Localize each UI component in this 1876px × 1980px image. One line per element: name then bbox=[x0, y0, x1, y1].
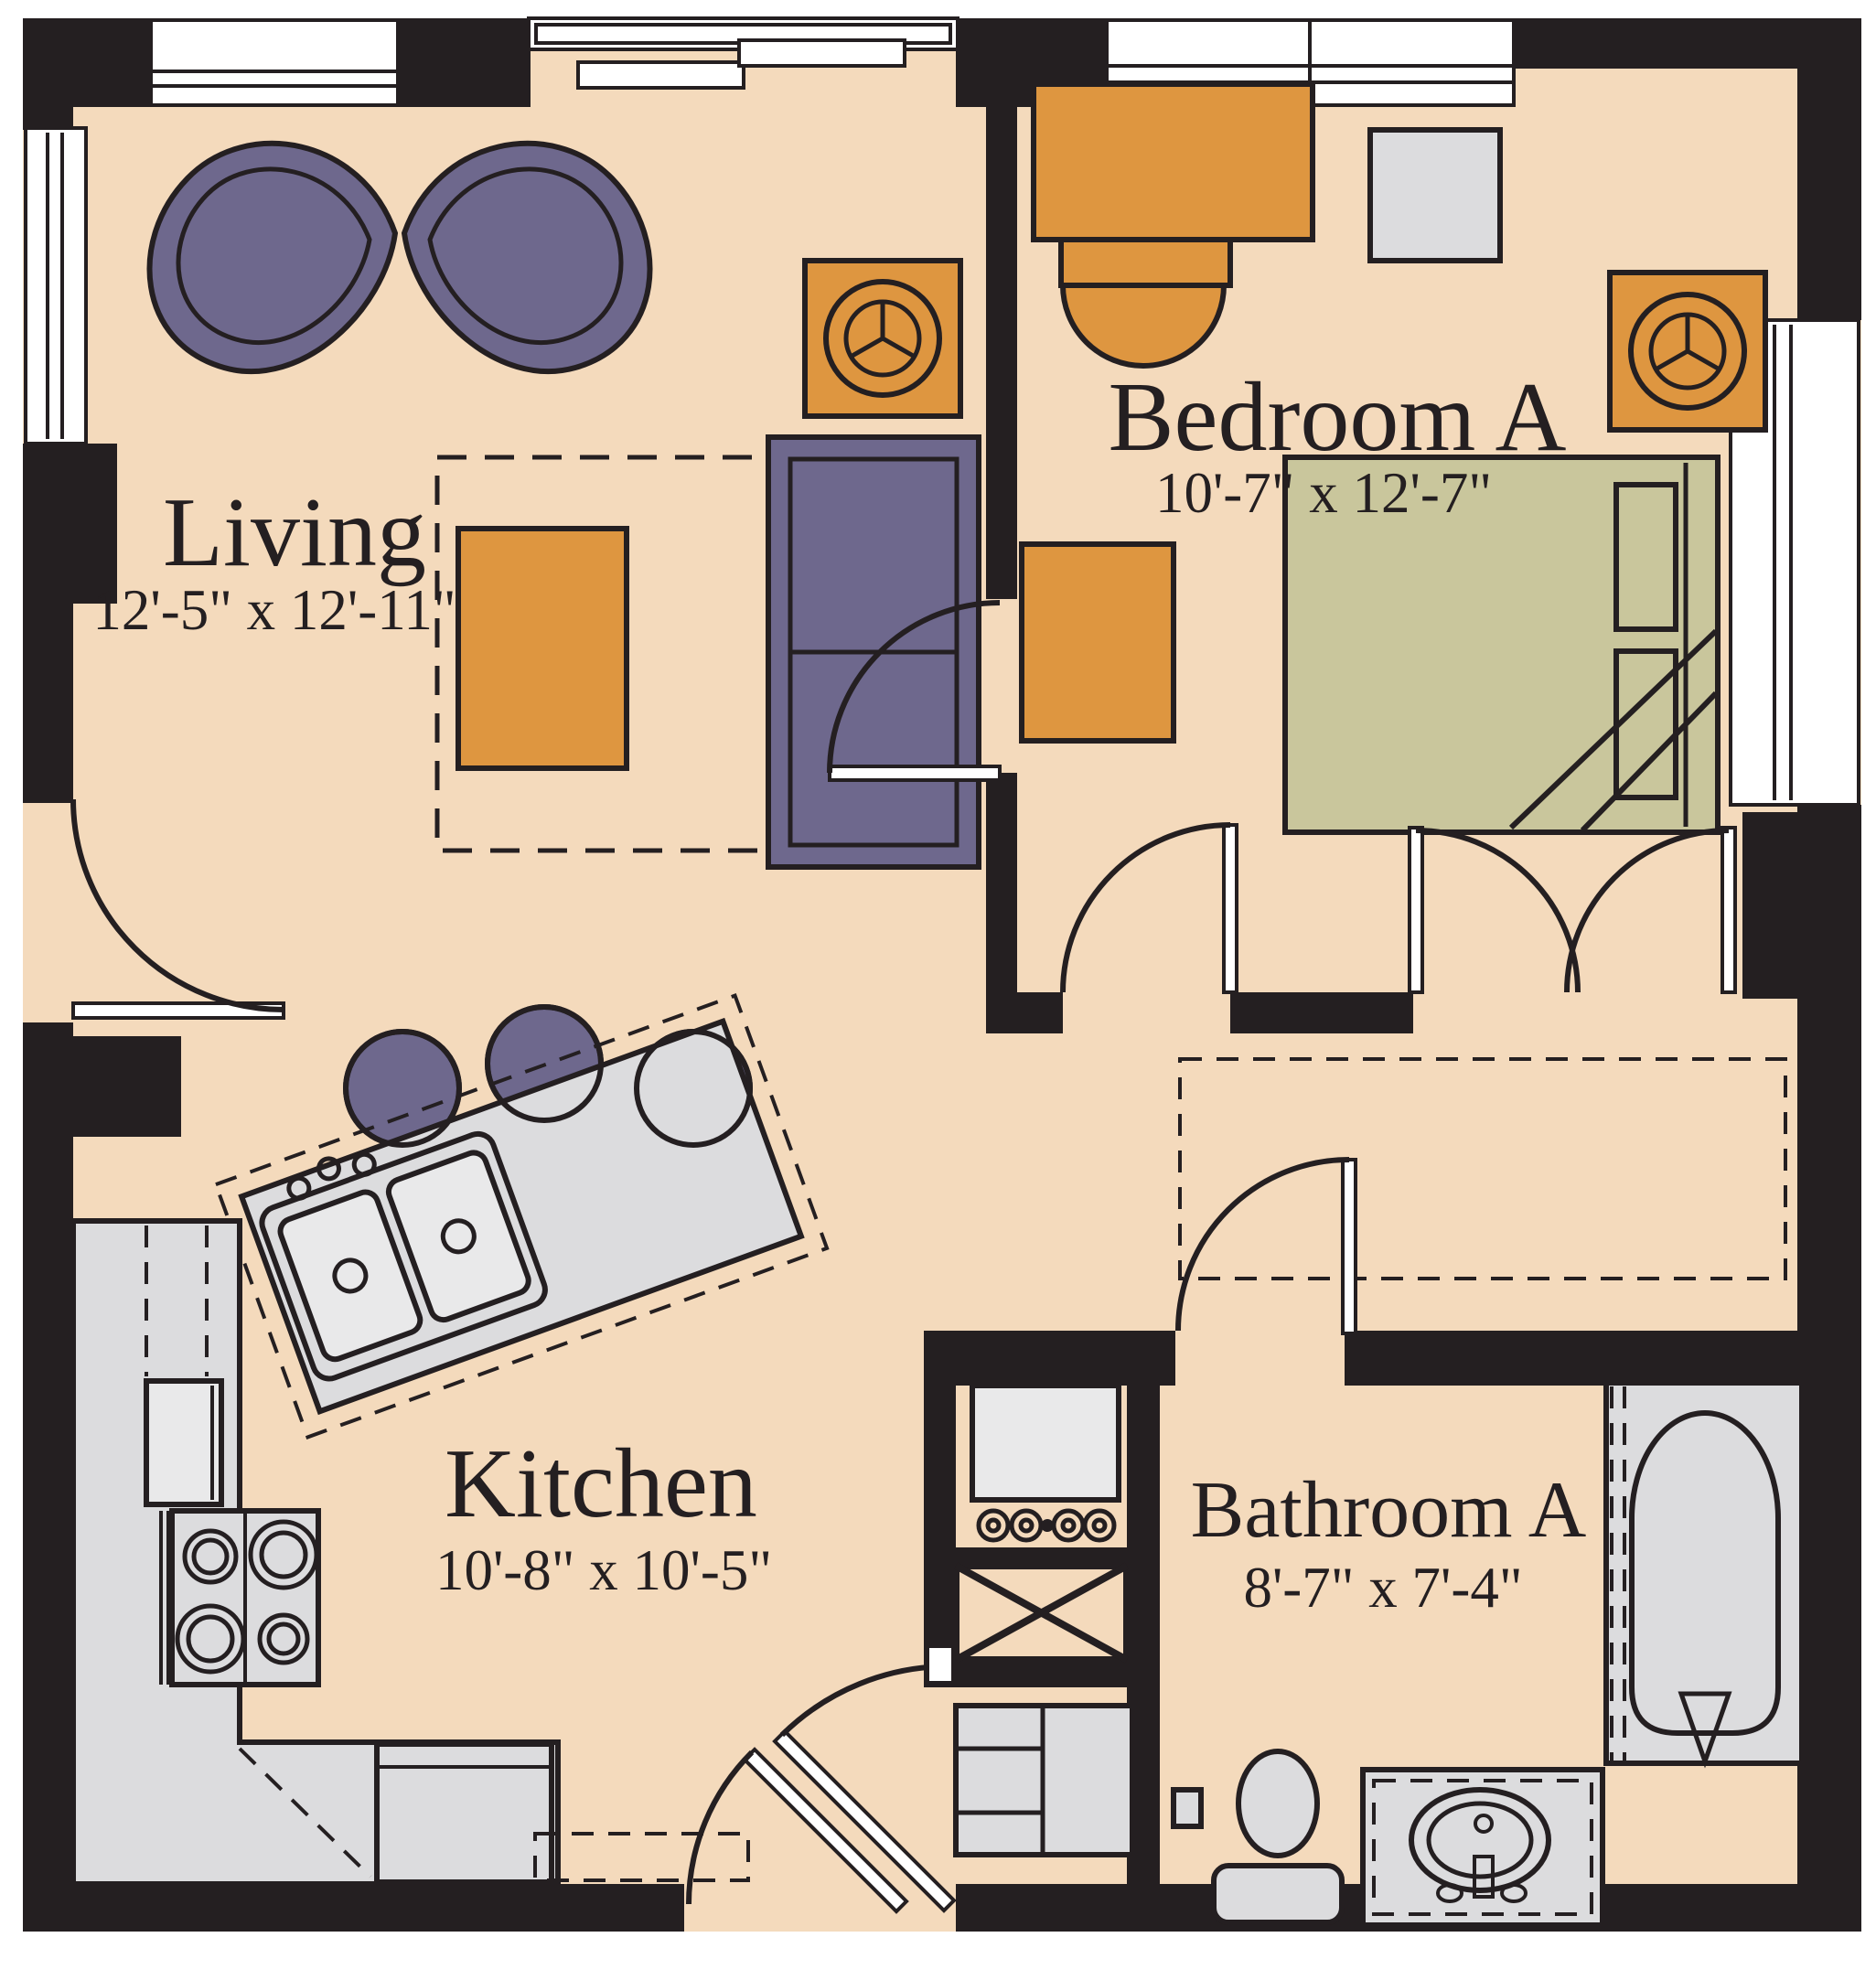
wall-fixture bbox=[1174, 1790, 1201, 1826]
bathroom-a-dimensions: 8'-7" x 7'-4" bbox=[1243, 1556, 1522, 1620]
kitchen-label: Kitchen bbox=[445, 1429, 757, 1538]
sliding-panel-right bbox=[739, 40, 905, 66]
toilet-tank bbox=[1214, 1866, 1342, 1922]
bedroom-a-dimensions: 10'-7" x 12'-7" bbox=[1155, 461, 1492, 525]
base-cabinet bbox=[377, 1744, 552, 1882]
window-living bbox=[151, 20, 398, 105]
sliding-panel-left bbox=[578, 62, 744, 88]
dresser bbox=[1022, 544, 1174, 741]
vanity bbox=[1363, 1770, 1603, 1925]
refrigerator bbox=[146, 1381, 221, 1504]
foyer-cabinet bbox=[956, 1706, 1132, 1855]
living-dimensions: 12'-5" x 12'-11" bbox=[92, 578, 456, 642]
floor-plan: Living 12'-5" x 12'-11" Bedroom A 10'-7"… bbox=[0, 0, 1876, 1980]
side-table-lamp-living bbox=[805, 261, 960, 416]
kitchen-dimensions: 10'-8" x 10'-5" bbox=[435, 1538, 772, 1602]
bathroom-a-label: Bathroom A bbox=[1191, 1466, 1587, 1555]
coffee-table bbox=[458, 529, 627, 768]
bedroom-a-label: Bedroom A bbox=[1109, 363, 1567, 472]
bathtub bbox=[1606, 1383, 1802, 1763]
nightstand-gray bbox=[1370, 130, 1500, 261]
pillow bbox=[1616, 651, 1676, 797]
floor-plan-page: Living 12'-5" x 12'-11" Bedroom A 10'-7"… bbox=[0, 0, 1876, 1980]
living-label: Living bbox=[163, 478, 426, 587]
sofa bbox=[768, 437, 979, 867]
stove bbox=[161, 1511, 318, 1685]
washer-dryer bbox=[972, 1386, 1119, 1500]
window-living-left bbox=[26, 128, 86, 444]
side-table-lamp-bedroom bbox=[1610, 273, 1765, 430]
pillow bbox=[1616, 485, 1676, 629]
